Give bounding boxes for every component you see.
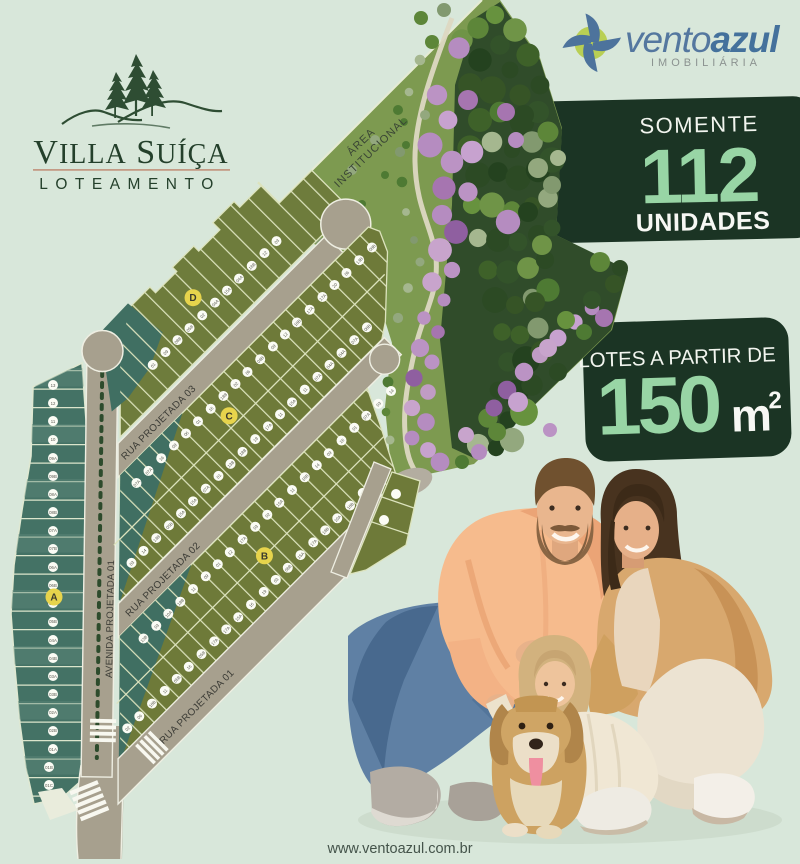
svg-text:06B: 06B (49, 583, 57, 588)
svg-text:07A: 07A (49, 528, 57, 533)
svg-text:IMOBILIÁRIA: IMOBILIÁRIA (651, 56, 761, 69)
svg-text:01B: 01B (45, 765, 53, 770)
svg-text:02B: 02B (49, 728, 57, 733)
svg-text:C: C (225, 411, 232, 422)
svg-text:08A: 08A (49, 492, 57, 497)
svg-text:04A: 04A (49, 638, 57, 643)
svg-text:04B: 04B (49, 656, 57, 661)
svg-text:m: m (730, 388, 773, 441)
svg-text:ventoazul: ventoazul (625, 19, 780, 60)
svg-text:01C: 01C (45, 783, 53, 788)
svg-text:LOTEAMENTO: LOTEAMENTO (39, 176, 221, 193)
svg-text:150: 150 (595, 359, 721, 452)
svg-text:13: 13 (51, 383, 56, 388)
svg-text:03B: 03B (49, 692, 57, 697)
svg-text:AVENIDA PROJETADA 01: AVENIDA PROJETADA 01 (104, 560, 117, 678)
svg-text:06A: 06A (49, 565, 57, 570)
svg-text:B: B (261, 551, 268, 562)
svg-text:05B: 05B (49, 619, 57, 624)
svg-text:A: A (50, 593, 57, 604)
svg-text:D: D (189, 293, 196, 304)
svg-text:09A: 09A (49, 456, 57, 461)
svg-text:09B: 09B (49, 474, 57, 479)
svg-text:VILLA SUÍÇA: VILLA SUÍÇA (33, 134, 228, 171)
svg-text:www.ventoazul.com.br: www.ventoazul.com.br (326, 841, 472, 857)
svg-text:12: 12 (51, 401, 56, 406)
svg-text:02A: 02A (49, 710, 57, 715)
svg-text:2: 2 (768, 387, 782, 414)
svg-text:08B: 08B (49, 510, 57, 515)
svg-text:07B: 07B (49, 546, 57, 551)
svg-text:11: 11 (51, 419, 56, 424)
svg-text:UNIDADES: UNIDADES (636, 207, 771, 238)
svg-text:03A: 03A (49, 674, 57, 679)
svg-text:10: 10 (51, 437, 56, 442)
svg-text:01A: 01A (49, 747, 57, 752)
